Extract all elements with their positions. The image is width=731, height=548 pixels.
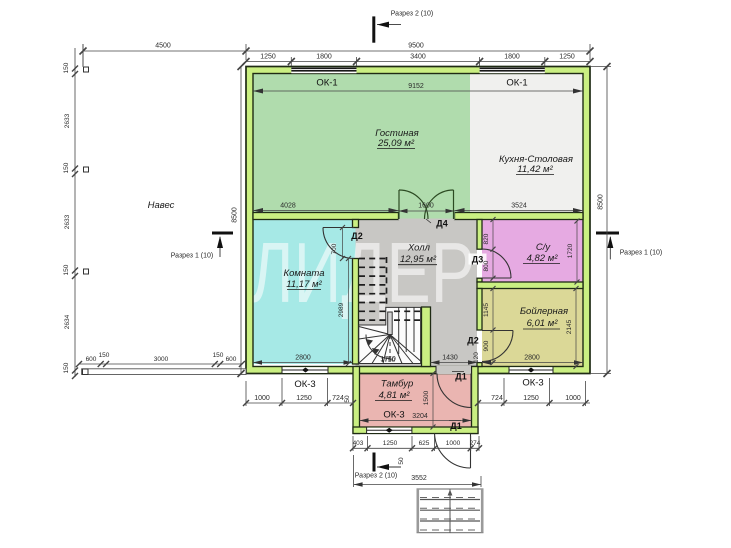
- svg-text:724: 724: [491, 395, 503, 402]
- svg-text:3000: 3000: [154, 356, 169, 363]
- svg-text:9500: 9500: [408, 43, 424, 50]
- svg-text:150: 150: [63, 162, 70, 173]
- svg-text:625: 625: [419, 440, 430, 447]
- svg-text:11,42 м²: 11,42 м²: [517, 164, 553, 175]
- svg-text:4,82 м²: 4,82 м²: [527, 253, 559, 264]
- svg-text:ОК-3: ОК-3: [383, 410, 404, 421]
- svg-text:150: 150: [63, 62, 70, 73]
- svg-text:274: 274: [470, 440, 481, 447]
- svg-text:Д1: Д1: [450, 421, 461, 431]
- svg-text:12,95 м²: 12,95 м²: [400, 254, 437, 265]
- svg-text:403: 403: [353, 440, 364, 447]
- svg-text:50: 50: [398, 457, 405, 465]
- svg-text:8500: 8500: [598, 194, 605, 210]
- svg-text:120: 120: [473, 352, 480, 363]
- svg-text:600: 600: [226, 356, 237, 363]
- svg-text:1000: 1000: [565, 395, 581, 402]
- svg-text:4500: 4500: [155, 43, 171, 50]
- svg-text:1000: 1000: [254, 395, 270, 402]
- svg-text:150: 150: [213, 352, 224, 359]
- svg-text:150: 150: [63, 264, 70, 275]
- svg-text:Навес: Навес: [148, 200, 175, 211]
- svg-text:3524: 3524: [511, 203, 527, 210]
- svg-text:Д4: Д4: [436, 219, 447, 229]
- svg-text:1430: 1430: [442, 355, 458, 362]
- svg-text:9152: 9152: [408, 83, 424, 90]
- svg-text:600: 600: [86, 356, 97, 363]
- svg-text:Разрез 1 (10): Разрез 1 (10): [171, 253, 214, 260]
- svg-text:ОК-3: ОК-3: [522, 378, 543, 389]
- svg-text:4,81 м²: 4,81 м²: [379, 390, 411, 401]
- svg-text:724: 724: [332, 395, 344, 402]
- svg-text:1800: 1800: [504, 54, 520, 61]
- svg-text:1145: 1145: [483, 303, 490, 317]
- svg-text:1250: 1250: [559, 54, 575, 61]
- svg-text:1720: 1720: [567, 243, 574, 258]
- svg-text:150: 150: [63, 362, 70, 373]
- svg-text:700: 700: [331, 243, 338, 254]
- svg-text:2989: 2989: [338, 302, 345, 317]
- svg-text:8500: 8500: [232, 207, 239, 223]
- svg-text:2633: 2633: [64, 113, 71, 128]
- svg-text:1250: 1250: [383, 440, 398, 447]
- svg-text:ОК-1: ОК-1: [316, 78, 337, 89]
- svg-text:Д3: Д3: [472, 255, 483, 265]
- svg-text:Разрез 2 (10): Разрез 2 (10): [355, 473, 398, 480]
- svg-text:1000: 1000: [446, 440, 461, 447]
- svg-text:2145: 2145: [566, 319, 573, 334]
- svg-text:Разрез 2 (10): Разрез 2 (10): [391, 11, 434, 18]
- svg-text:1500: 1500: [423, 390, 430, 405]
- svg-text:1600: 1600: [418, 203, 434, 210]
- svg-text:820: 820: [483, 233, 490, 244]
- svg-text:Разрез 1 (10): Разрез 1 (10): [620, 250, 663, 257]
- svg-text:1250: 1250: [296, 395, 312, 402]
- svg-text:3204: 3204: [412, 413, 428, 420]
- svg-text:Бойлерная: Бойлерная: [520, 306, 568, 317]
- svg-text:2633: 2633: [64, 214, 71, 229]
- svg-text:Холл: Холл: [407, 243, 431, 254]
- svg-text:800: 800: [483, 260, 490, 271]
- svg-text:150: 150: [99, 352, 110, 359]
- svg-text:Д2: Д2: [351, 231, 362, 241]
- svg-text:2634: 2634: [64, 314, 71, 329]
- svg-text:6,01 м²: 6,01 м²: [527, 318, 559, 329]
- svg-text:11,17 м²: 11,17 м²: [286, 279, 322, 290]
- svg-text:Комната: Комната: [284, 268, 325, 279]
- svg-text:2800: 2800: [295, 355, 311, 362]
- svg-text:50: 50: [344, 395, 351, 403]
- svg-text:25,09 м²: 25,09 м²: [377, 138, 415, 149]
- svg-text:900: 900: [483, 340, 490, 351]
- svg-text:3552: 3552: [411, 475, 427, 482]
- svg-text:Д2: Д2: [467, 336, 478, 346]
- svg-text:ОК-1: ОК-1: [506, 78, 527, 89]
- svg-text:1250: 1250: [260, 54, 276, 61]
- svg-text:Тамбур: Тамбур: [381, 379, 414, 390]
- svg-text:1250: 1250: [523, 395, 539, 402]
- svg-text:Д1: Д1: [455, 372, 466, 382]
- svg-text:2800: 2800: [524, 355, 540, 362]
- svg-text:3400: 3400: [410, 54, 426, 61]
- svg-text:ОК-3: ОК-3: [294, 379, 315, 390]
- svg-text:1800: 1800: [316, 54, 332, 61]
- svg-text:4028: 4028: [280, 203, 296, 210]
- svg-text:С/у: С/у: [536, 242, 552, 253]
- svg-text:1750: 1750: [380, 356, 396, 363]
